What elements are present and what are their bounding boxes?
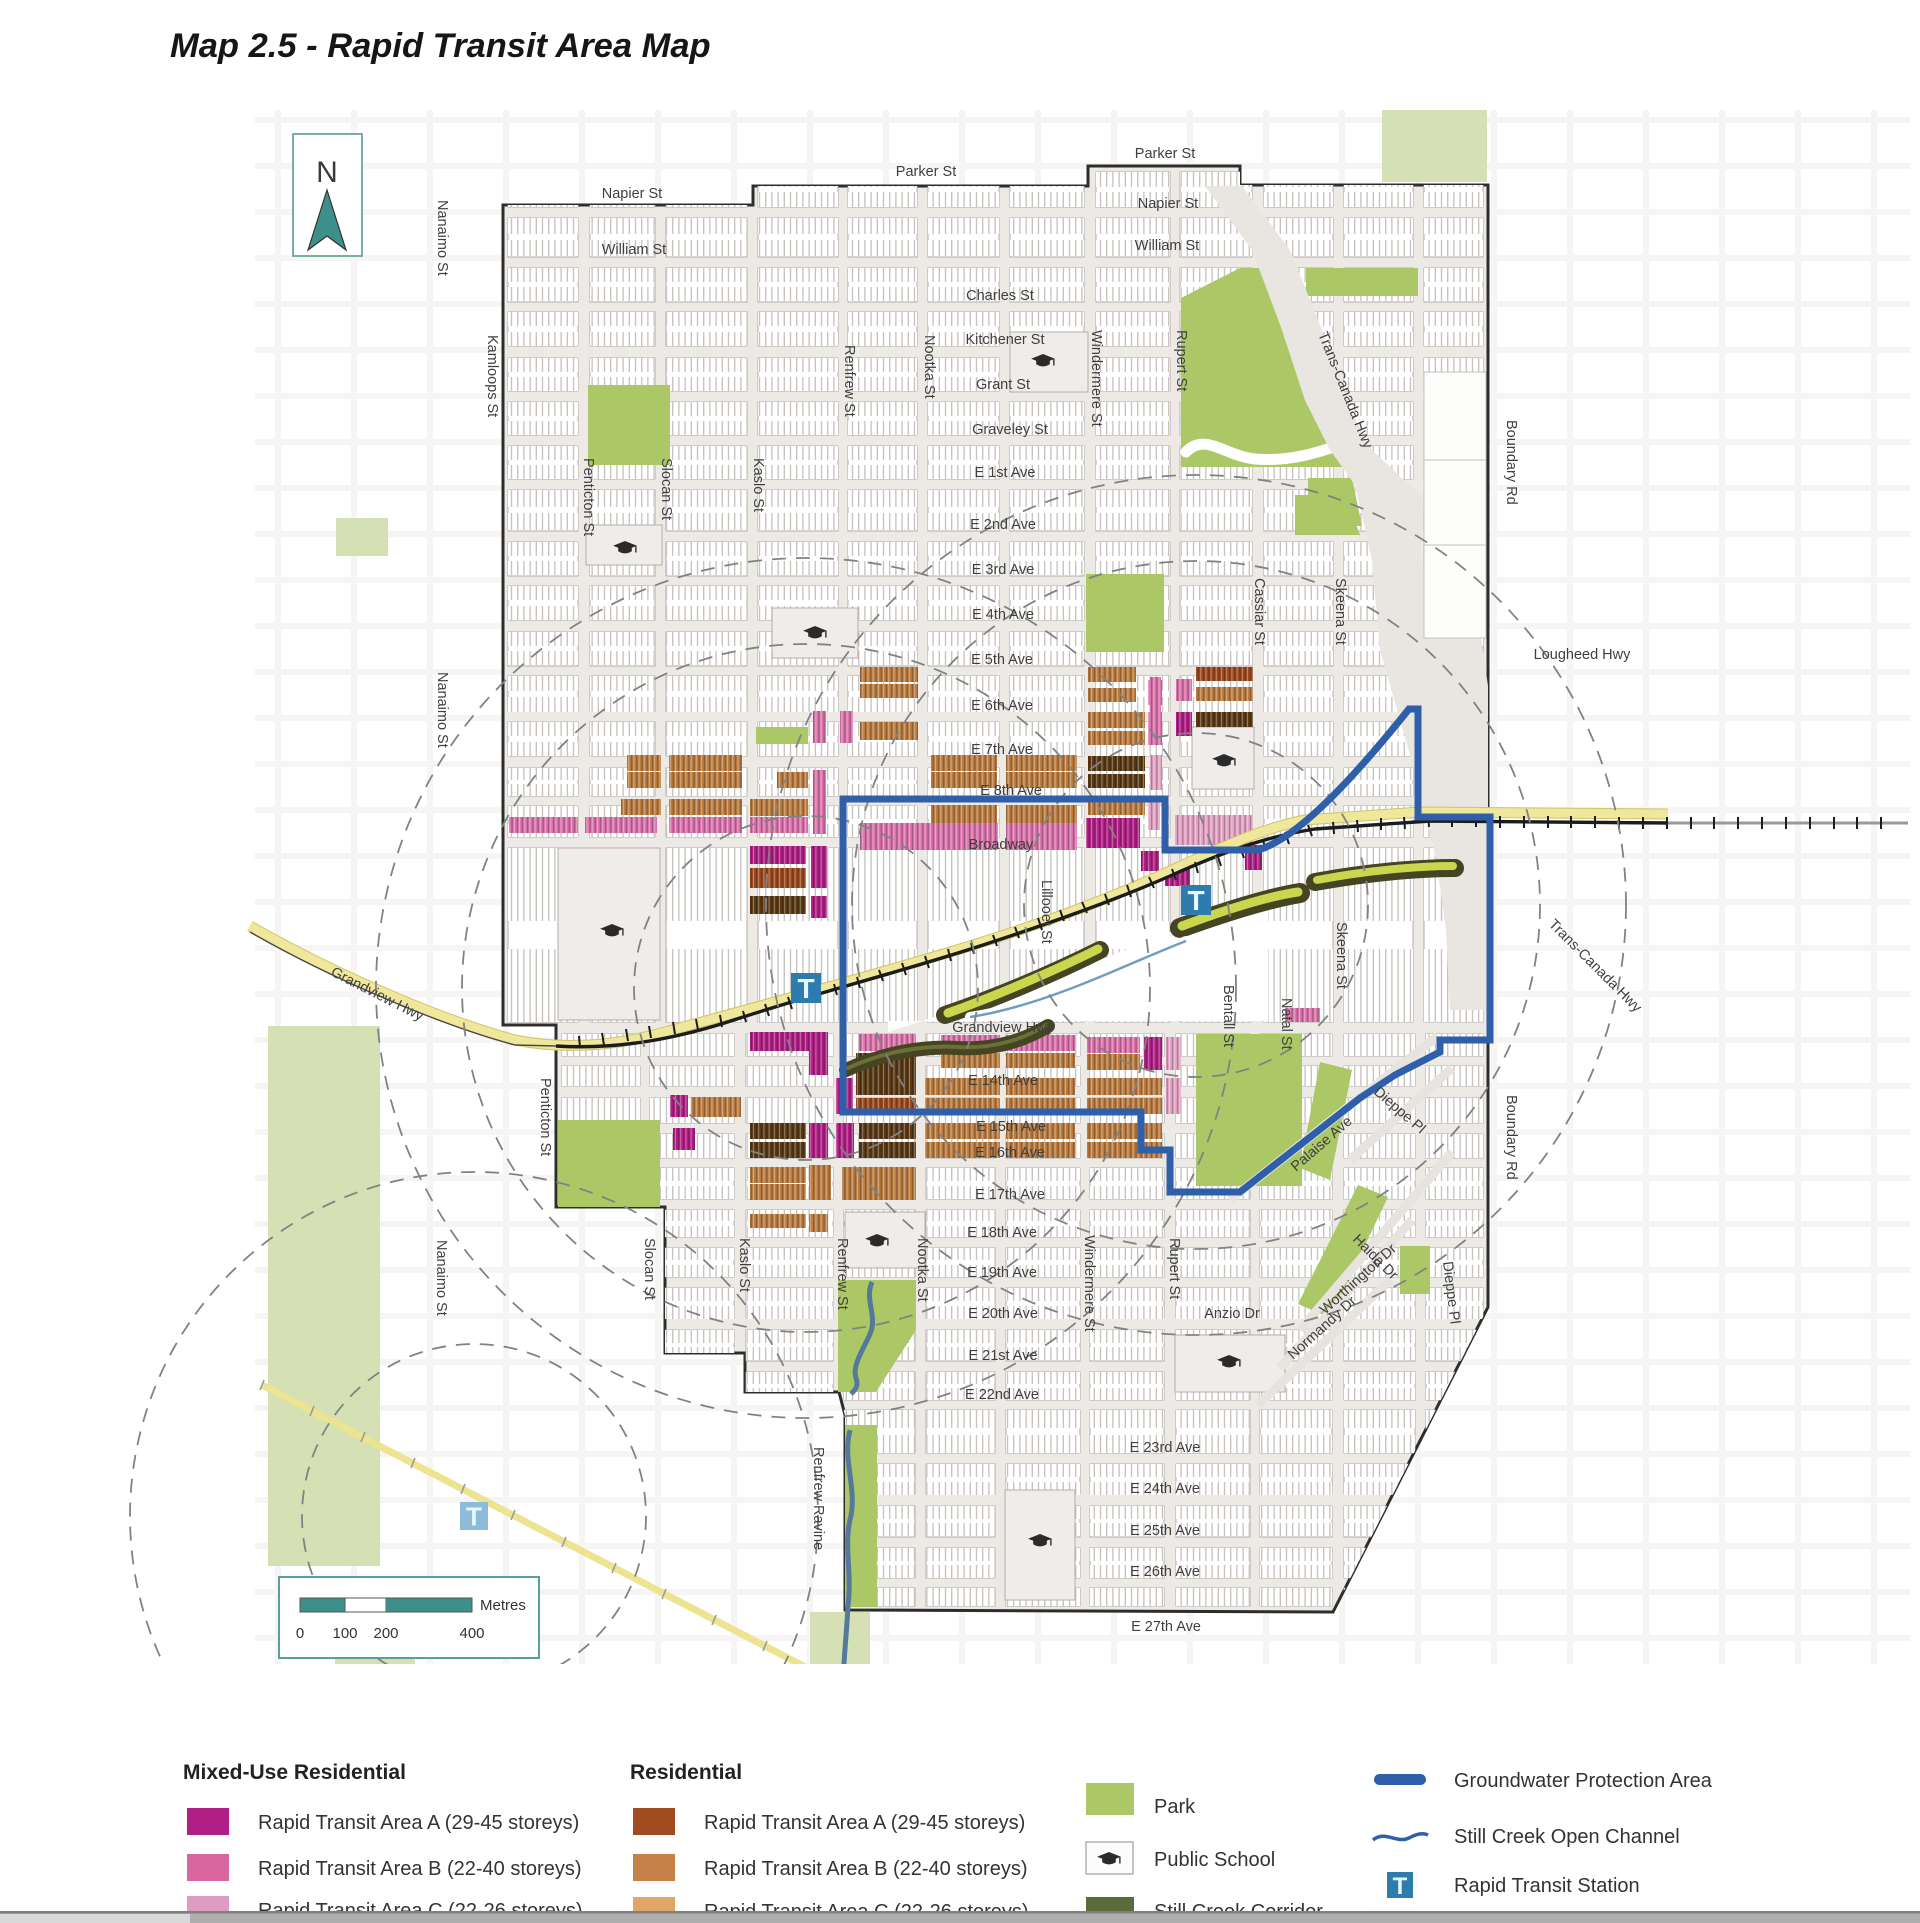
svg-text:Skeena St: Skeena St	[1333, 922, 1349, 989]
svg-text:E 8th Ave: E 8th Ave	[980, 783, 1042, 799]
svg-text:E 7th Ave: E 7th Ave	[971, 742, 1033, 758]
svg-text:Boundary Rd: Boundary Rd	[1503, 420, 1519, 505]
svg-text:Rapid Transit Area A (29-45 st: Rapid Transit Area A (29-45 storeys)	[704, 1812, 1025, 1834]
svg-text:Graveley St: Graveley St	[972, 422, 1048, 438]
svg-text:Windermere St: Windermere St	[1081, 1235, 1097, 1332]
svg-text:0: 0	[296, 1625, 304, 1642]
svg-text:Penticton St: Penticton St	[537, 1078, 553, 1156]
svg-text:E 19th Ave: E 19th Ave	[967, 1265, 1037, 1281]
svg-text:Kamloops St: Kamloops St	[484, 335, 500, 417]
svg-text:E 26th Ave: E 26th Ave	[1130, 1564, 1200, 1580]
svg-text:Nanaimo St: Nanaimo St	[434, 200, 450, 276]
svg-text:Slocan St: Slocan St	[641, 1238, 657, 1300]
svg-text:Mixed-Use Residential: Mixed-Use Residential	[183, 1761, 406, 1784]
svg-text:T: T	[466, 1502, 482, 1532]
svg-text:Parker St: Parker St	[896, 164, 956, 180]
svg-text:E 23rd Ave: E 23rd Ave	[1130, 1440, 1201, 1456]
svg-text:T: T	[1393, 1873, 1408, 1900]
svg-text:Napier St: Napier St	[602, 186, 662, 202]
svg-text:Charles St: Charles St	[966, 288, 1034, 304]
svg-text:Lillooet St: Lillooet St	[1038, 880, 1054, 944]
svg-text:Bentall St: Bentall St	[1220, 985, 1236, 1047]
svg-text:Map 2.5 - Rapid Transit Area M: Map 2.5 - Rapid Transit Area Map	[170, 27, 711, 65]
svg-text:E 17th Ave: E 17th Ave	[975, 1187, 1045, 1203]
svg-text:Grandview Hwy: Grandview Hwy	[952, 1020, 1054, 1036]
svg-text:Rapid Transit Station: Rapid Transit Station	[1454, 1875, 1640, 1897]
svg-text:E 5th Ave: E 5th Ave	[971, 652, 1033, 668]
svg-text:Rapid Transit Area B (22-40 st: Rapid Transit Area B (22-40 storeys)	[704, 1858, 1027, 1880]
svg-text:Penticton St: Penticton St	[580, 458, 596, 536]
svg-text:Kaslo St: Kaslo St	[750, 458, 766, 512]
svg-text:E 22nd Ave: E 22nd Ave	[965, 1387, 1039, 1403]
svg-text:Anzio Dr: Anzio Dr	[1204, 1306, 1260, 1322]
svg-text:100: 100	[332, 1625, 357, 1642]
svg-text:E 27th Ave: E 27th Ave	[1131, 1619, 1201, 1635]
svg-text:Park: Park	[1154, 1796, 1196, 1818]
svg-text:Metres: Metres	[480, 1597, 526, 1614]
svg-text:200: 200	[373, 1625, 398, 1642]
svg-text:Public School: Public School	[1154, 1849, 1275, 1871]
svg-text:Renfrew Ravine: Renfrew Ravine	[810, 1447, 826, 1550]
svg-text:E 1st Ave: E 1st Ave	[975, 465, 1036, 481]
svg-text:Renfrew St: Renfrew St	[841, 345, 857, 417]
svg-text:400: 400	[459, 1625, 484, 1642]
svg-text:Groundwater Protection Area: Groundwater Protection Area	[1454, 1770, 1713, 1792]
svg-text:Broadway: Broadway	[969, 837, 1034, 853]
svg-text:Kaslo St: Kaslo St	[736, 1238, 752, 1292]
svg-text:E 15th Ave: E 15th Ave	[976, 1119, 1046, 1135]
svg-text:E 18th Ave: E 18th Ave	[967, 1225, 1037, 1241]
svg-text:Windermere St: Windermere St	[1088, 330, 1104, 427]
svg-text:E 16th Ave: E 16th Ave	[975, 1145, 1045, 1161]
svg-text:E 25th Ave: E 25th Ave	[1130, 1523, 1200, 1539]
svg-text:Residential: Residential	[630, 1761, 742, 1784]
svg-text:Lougheed Hwy: Lougheed Hwy	[1534, 647, 1631, 663]
svg-text:Cassiar St: Cassiar St	[1251, 578, 1267, 645]
svg-text:Rapid Transit Area B (22-40 st: Rapid Transit Area B (22-40 storeys)	[258, 1858, 581, 1880]
svg-text:Rupert St: Rupert St	[1166, 1238, 1182, 1299]
svg-text:Napier St: Napier St	[1138, 196, 1198, 212]
svg-text:N: N	[316, 156, 338, 189]
svg-text:Nootka St: Nootka St	[914, 1238, 930, 1302]
svg-text:Nanaimo St: Nanaimo St	[434, 672, 450, 748]
svg-text:William St: William St	[602, 242, 666, 258]
svg-text:T: T	[797, 973, 814, 1004]
svg-text:E 21st Ave: E 21st Ave	[968, 1348, 1037, 1364]
svg-text:E 14th Ave: E 14th Ave	[968, 1073, 1038, 1089]
svg-text:Renfrew St: Renfrew St	[834, 1238, 850, 1310]
svg-text:Grant St: Grant St	[976, 377, 1030, 393]
svg-text:Nanaimo St: Nanaimo St	[433, 1240, 449, 1316]
svg-text:E 20th Ave: E 20th Ave	[968, 1306, 1038, 1322]
svg-text:E 4th Ave: E 4th Ave	[972, 607, 1034, 623]
svg-text:E 2nd Ave: E 2nd Ave	[970, 517, 1036, 533]
svg-text:Parker St: Parker St	[1135, 146, 1195, 162]
svg-text:Skeena St: Skeena St	[1332, 578, 1348, 645]
svg-text:Still Creek Open Channel: Still Creek Open Channel	[1454, 1826, 1680, 1848]
svg-text:E 6th Ave: E 6th Ave	[971, 698, 1033, 714]
svg-text:William St: William St	[1135, 238, 1199, 254]
svg-text:Boundary Rd: Boundary Rd	[1503, 1095, 1519, 1180]
svg-text:Rapid Transit Area A (29-45 st: Rapid Transit Area A (29-45 storeys)	[258, 1812, 579, 1834]
svg-text:E 24th Ave: E 24th Ave	[1130, 1481, 1200, 1497]
svg-text:E 3rd Ave: E 3rd Ave	[972, 562, 1035, 578]
svg-text:Rupert St: Rupert St	[1173, 330, 1189, 391]
svg-text:Nootka St: Nootka St	[921, 335, 937, 399]
svg-text:Slocan St: Slocan St	[658, 458, 674, 520]
svg-text:T: T	[1187, 885, 1204, 916]
svg-text:Kitchener St: Kitchener St	[966, 332, 1045, 348]
svg-text:Natal St: Natal St	[1278, 998, 1294, 1050]
